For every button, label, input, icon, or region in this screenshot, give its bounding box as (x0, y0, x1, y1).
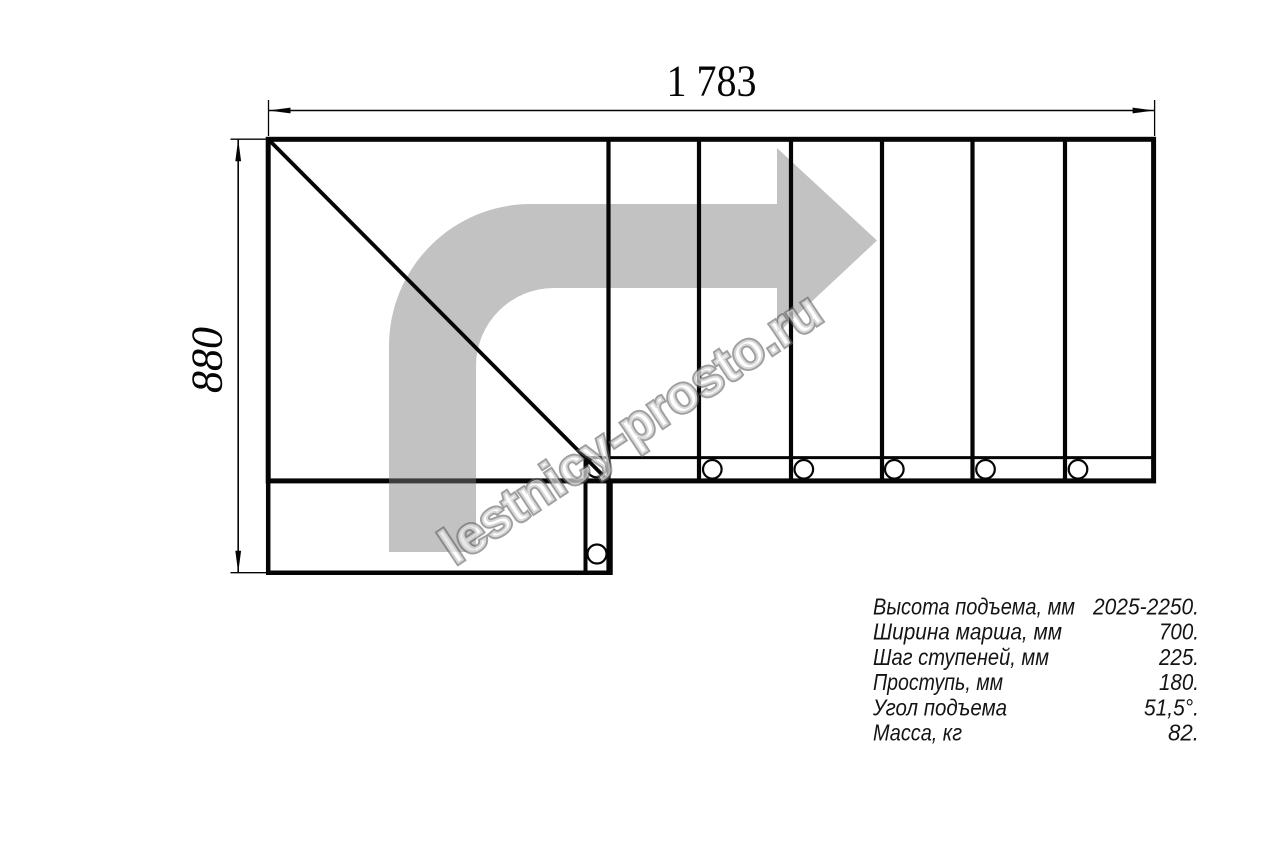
svg-text:Высота подъема, мм: Высота подъема, мм (873, 594, 1075, 620)
svg-text:1 783: 1 783 (667, 56, 757, 106)
svg-text:700.: 700. (1159, 619, 1199, 645)
svg-text:82.: 82. (1168, 720, 1199, 746)
svg-text:Шаг ступеней, мм: Шаг ступеней, мм (873, 644, 1049, 670)
svg-text:Масса, кг: Масса, кг (873, 720, 962, 746)
svg-text:225.: 225. (1158, 644, 1199, 670)
svg-text:51,5°.: 51,5°. (1144, 694, 1199, 720)
svg-text:2025-2250.: 2025-2250. (1092, 594, 1199, 620)
svg-text:Ширина марша, мм: Ширина марша, мм (873, 619, 1062, 645)
svg-text:180.: 180. (1159, 669, 1199, 695)
svg-text:Угол подъема: Угол подъема (872, 694, 1007, 720)
svg-text:Проступь, мм: Проступь, мм (873, 669, 1003, 695)
svg-text:880: 880 (183, 327, 232, 393)
